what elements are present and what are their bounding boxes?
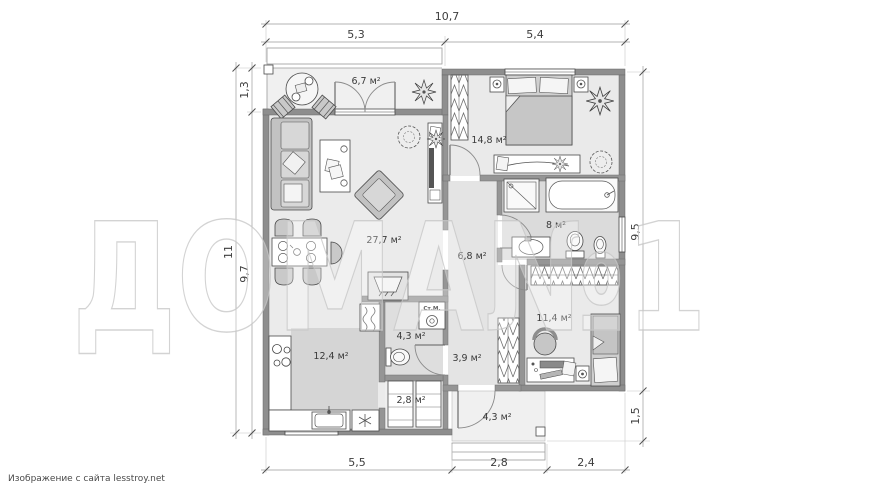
pergola-outline (267, 48, 442, 64)
dim-bottom-right: 2,4 (577, 456, 595, 469)
speaker (576, 366, 589, 381)
room-label-bedroom1: 14,8 м² (471, 135, 506, 146)
bedroom1-wardrobe (451, 75, 468, 140)
plant-icon (412, 80, 436, 104)
dim-bottom-center: 2,8 (490, 456, 508, 469)
plant-icon (398, 126, 420, 148)
dresser (494, 155, 580, 173)
fridge (352, 410, 379, 431)
porch-post (536, 427, 545, 436)
dim-left-terrace: 1,3 (238, 81, 251, 99)
dim-bottom-left: 5,5 (348, 456, 366, 469)
plant-icon (586, 87, 614, 115)
plant-icon (552, 156, 568, 172)
plant-icon (590, 151, 612, 173)
dim-top-left: 5,3 (347, 28, 365, 41)
dim-top-right: 5,4 (526, 28, 544, 41)
window-bedroom1 (505, 69, 575, 75)
room-label-porch: 4,3 м² (482, 412, 511, 423)
room-label-terrace: 6,7 м² (351, 76, 380, 87)
plant-icon (427, 130, 445, 148)
watermark-text: ДОМА№1 (72, 192, 707, 366)
bedroom1-bed (506, 75, 572, 145)
dim-top-overall: 10,7 (435, 10, 460, 23)
floor-plan-svg: Ст.М. (0, 0, 880, 495)
terrace-post (264, 65, 273, 74)
console-desk (320, 140, 350, 192)
floor-plan-page: Ст.М. (0, 0, 880, 495)
room-label-pantry: 2,8 м² (396, 395, 425, 406)
nightstand-right (574, 77, 588, 92)
terrace-table (286, 73, 318, 105)
dim-right-porch: 1,5 (629, 407, 642, 425)
nightstand-left (490, 77, 504, 92)
credit-text: Изображение с сайта lesstroy.net (8, 474, 165, 484)
